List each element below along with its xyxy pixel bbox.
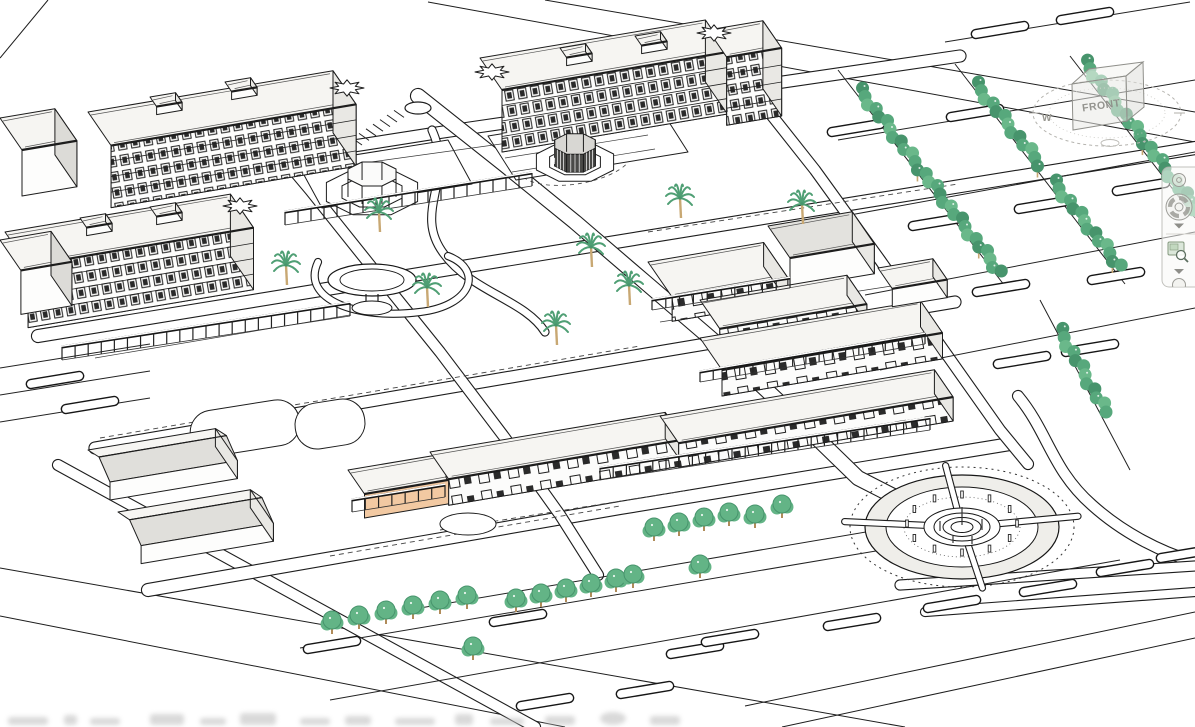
palm-tree bbox=[666, 185, 694, 219]
round-tree bbox=[456, 586, 479, 609]
shed-building bbox=[118, 490, 273, 564]
round-tree bbox=[375, 601, 398, 624]
steering-wheel-mini-button[interactable] bbox=[1173, 174, 1186, 187]
round-tree bbox=[530, 584, 553, 607]
navigation-bar bbox=[1162, 167, 1195, 292]
round-tree bbox=[668, 513, 691, 536]
viewcube[interactable]: W FRONT bbox=[1029, 62, 1185, 147]
navigation-wheel-mini-icon bbox=[1173, 174, 1186, 187]
round-tree bbox=[771, 495, 794, 518]
annex-building bbox=[0, 109, 77, 196]
round-tree bbox=[462, 637, 485, 660]
round-tree bbox=[555, 579, 578, 602]
round-tree bbox=[718, 503, 741, 526]
bottom-artifact-strip bbox=[0, 709, 760, 727]
round-tree bbox=[744, 505, 767, 528]
magnifier-icon bbox=[1177, 251, 1186, 260]
round-tree bbox=[505, 589, 528, 612]
classroom-building bbox=[430, 412, 684, 505]
viewport[interactable]: W FRONT bbox=[0, 0, 1195, 727]
tree-row bbox=[1056, 322, 1112, 419]
round-tree bbox=[429, 591, 452, 614]
round-tree bbox=[402, 596, 425, 619]
palm-tree bbox=[542, 312, 570, 346]
tree-row bbox=[972, 76, 1044, 178]
round-tree bbox=[643, 518, 666, 541]
round-tree bbox=[693, 508, 716, 531]
compass-home-ring bbox=[1101, 140, 1119, 147]
compass-west-label[interactable]: W bbox=[1042, 113, 1052, 124]
circle-tool-icon[interactable] bbox=[1173, 279, 1186, 292]
palm-tree bbox=[272, 252, 300, 286]
full-navigation-wheel-button[interactable] bbox=[1166, 194, 1192, 220]
palm-tree bbox=[615, 272, 643, 306]
kiosk-building bbox=[878, 259, 947, 307]
model-view[interactable] bbox=[0, 0, 1195, 727]
dormitory-building bbox=[480, 20, 727, 152]
